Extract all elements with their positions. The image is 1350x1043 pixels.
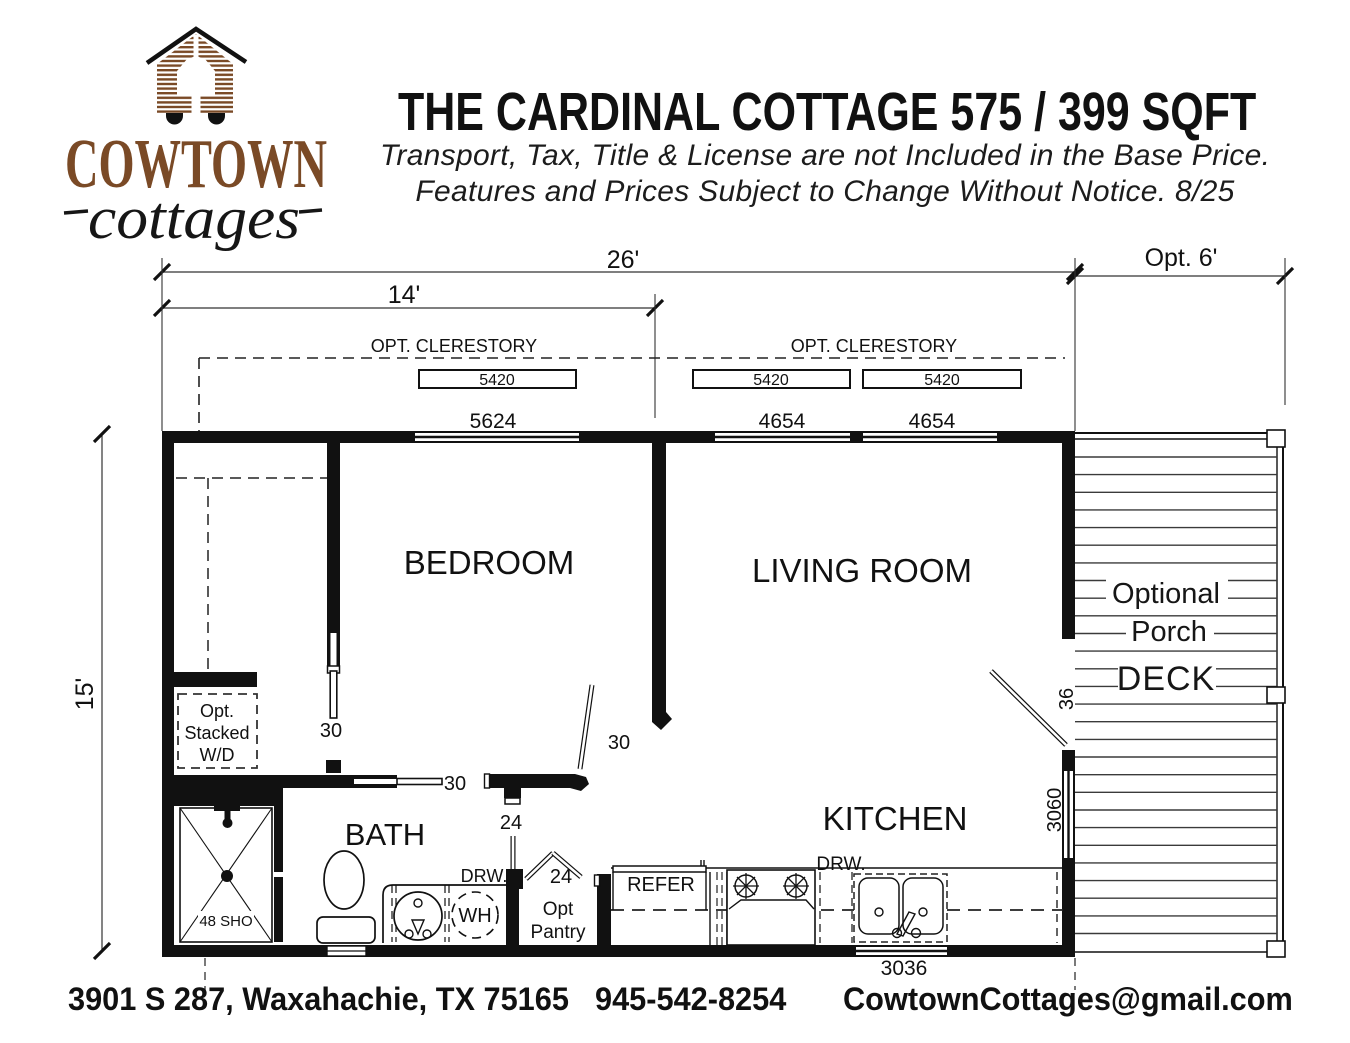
svg-text:26': 26': [607, 246, 640, 274]
svg-text:DRW.: DRW.: [461, 866, 508, 886]
svg-text:4654: 4654: [909, 410, 956, 433]
svg-text:LIVING ROOM: LIVING ROOM: [752, 552, 972, 589]
svg-text:Opt: Opt: [543, 899, 574, 920]
svg-text:14': 14': [388, 281, 421, 309]
svg-text:W/D: W/D: [200, 745, 235, 765]
svg-text:3036: 3036: [881, 957, 928, 980]
svg-text:Opt. 6': Opt. 6': [1145, 244, 1218, 272]
svg-text:Pantry: Pantry: [531, 922, 586, 943]
svg-text:DECK: DECK: [1117, 660, 1215, 698]
svg-text:WH: WH: [458, 905, 491, 927]
svg-text:5420: 5420: [924, 372, 960, 389]
svg-text:BATH: BATH: [345, 817, 425, 852]
svg-text:5420: 5420: [753, 372, 789, 389]
svg-text:24: 24: [500, 812, 522, 834]
svg-text:4654: 4654: [759, 410, 806, 433]
svg-text:30: 30: [444, 773, 466, 795]
svg-text:15': 15': [71, 678, 99, 711]
svg-text:36: 36: [1056, 688, 1078, 710]
svg-text:5420: 5420: [479, 372, 515, 389]
svg-text:3060: 3060: [1044, 788, 1066, 833]
svg-text:5624: 5624: [470, 410, 517, 433]
svg-text:30: 30: [320, 720, 342, 742]
svg-text:DRW.: DRW.: [816, 854, 865, 875]
svg-text:KITCHEN: KITCHEN: [823, 800, 968, 837]
svg-text:REFER: REFER: [627, 874, 695, 896]
svg-text:Optional: Optional: [1112, 578, 1220, 610]
svg-text:OPT. CLERESTORY: OPT. CLERESTORY: [791, 336, 957, 356]
svg-text:Porch: Porch: [1131, 616, 1207, 648]
svg-text:OPT. CLERESTORY: OPT. CLERESTORY: [371, 336, 537, 356]
svg-text:30: 30: [608, 732, 630, 754]
svg-text:BEDROOM: BEDROOM: [404, 544, 575, 581]
svg-text:24: 24: [550, 866, 572, 888]
svg-text:Opt.: Opt.: [200, 701, 234, 721]
svg-text:48 SHO: 48 SHO: [199, 913, 252, 930]
svg-text:Stacked: Stacked: [184, 723, 249, 743]
